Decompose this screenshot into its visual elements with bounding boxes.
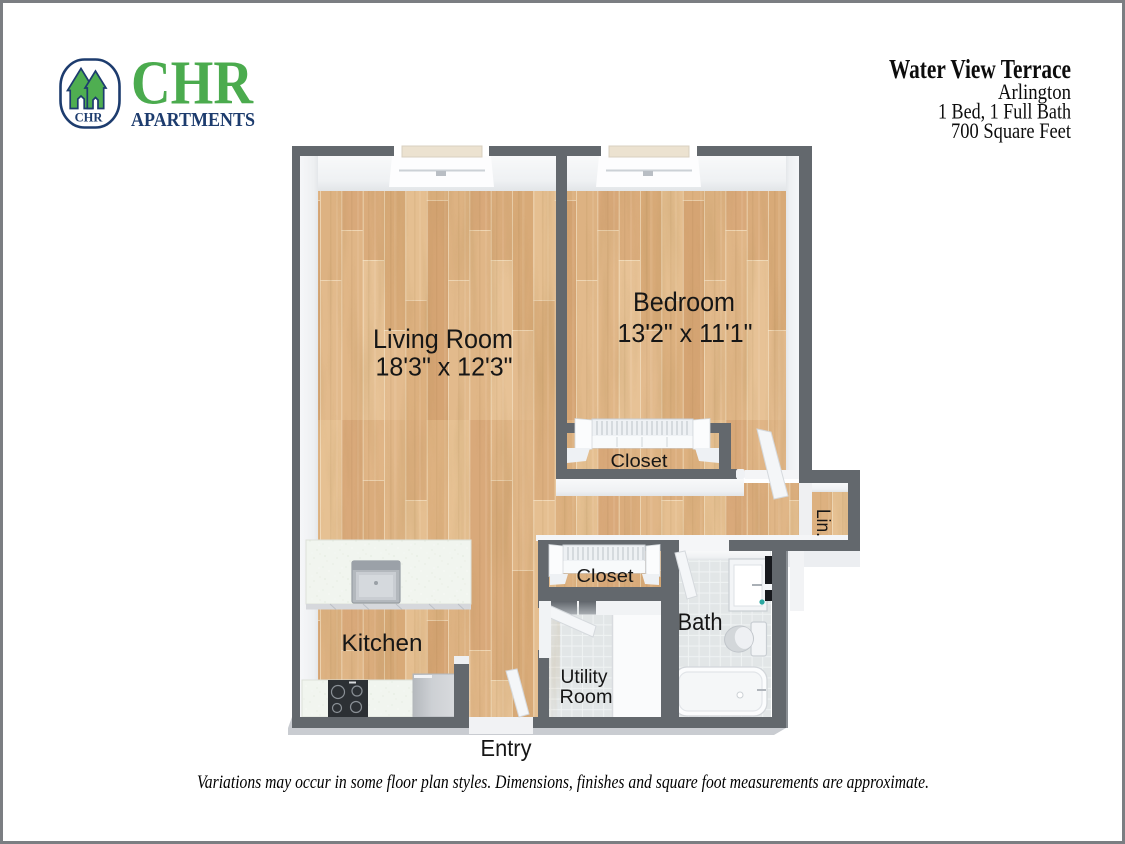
svg-text:18'3" x 12'3": 18'3" x 12'3" (376, 352, 513, 382)
svg-text:Closet: Closet (611, 450, 668, 471)
svg-text:APARTMENTS: APARTMENTS (131, 109, 255, 131)
svg-text:700 Square Feet: 700 Square Feet (951, 118, 1071, 143)
svg-text:Bath: Bath (678, 609, 723, 636)
svg-text:13'2" x 11'1": 13'2" x 11'1" (618, 318, 753, 348)
svg-text:Living Room: Living Room (373, 324, 513, 354)
svg-text:Variations may occur in some f: Variations may occur in some floor plan … (197, 773, 929, 793)
svg-text:Lin.: Lin. (812, 509, 833, 537)
svg-text:CHR: CHR (75, 111, 104, 125)
svg-text:Entry: Entry (481, 735, 532, 761)
svg-text:CHR: CHR (131, 50, 254, 118)
svg-text:Closet: Closet (577, 565, 634, 586)
svg-text:Utility: Utility (561, 667, 608, 688)
svg-text:Bedroom: Bedroom (633, 287, 735, 317)
svg-text:Kitchen: Kitchen (342, 630, 423, 657)
svg-text:Room: Room (560, 687, 613, 708)
